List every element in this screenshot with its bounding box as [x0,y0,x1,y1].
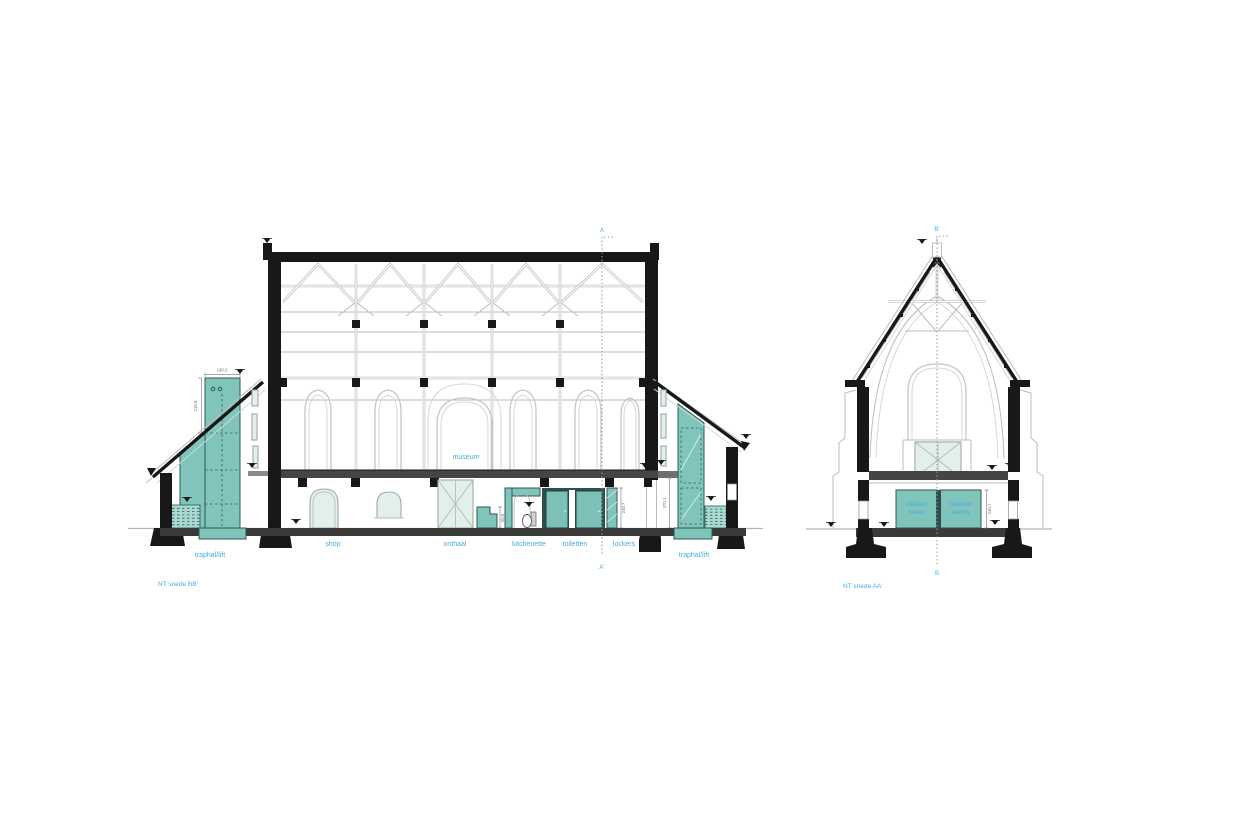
stairs-right [705,506,729,528]
roof-trusses [281,264,645,470]
room-label-traphal-left: traphal/lift [195,552,225,559]
nave-wall-right [645,262,658,470]
roof-slab [268,252,658,262]
dim-room-height: 240,7 [987,503,992,514]
reception-counter [477,507,497,528]
floor-slab-aa [856,528,1020,537]
room-label-onthaal: onthaal [444,541,467,548]
toiletten-dames-box [940,490,981,528]
shop-window-2 [377,492,401,518]
lockers-cabinet [607,488,617,528]
room-label-museum: museum [453,454,480,461]
cut-wall-right [1008,387,1020,472]
cut-label-b-top: B' [934,227,939,233]
room-label-traphal-right: traphal/lift [679,552,709,559]
caption-section-aa: NT snede AA' [843,583,882,590]
cut-label-b-bottom: B [935,571,939,577]
dim-shaft: 370,1 [662,497,667,508]
shop-window-1 [310,489,338,528]
dim-doors: 240,7 [621,502,626,513]
parapet-left [263,243,272,260]
toilet-bowl [523,515,532,528]
lift-shaft [205,378,240,528]
drawing-sheet: museum 190,0 [0,0,1256,838]
room-label-shop: shop [325,541,340,548]
section-aa: toiletten heren toiletten dames 240,7 B'… [806,227,1052,590]
cut-label-a-bottom: A' [599,565,604,571]
room-label-kitchenette: kitchenette [512,541,546,548]
toilet-doors [542,488,605,528]
label-heren-2: heren [909,510,924,516]
blueprint-canvas: museum 190,0 [0,0,1256,838]
outer-wall-left [160,473,172,528]
room-label-lockers: lockers [613,541,636,548]
label-dames-1: toiletten [950,502,971,508]
mezzanine-aa [869,471,1008,480]
floor-slab [160,528,746,536]
parapet-right [650,243,659,260]
left-aisle: 190,0 210,0 [146,368,265,547]
label-heren-1: toiletten [906,502,927,508]
ground-floor: 90,0 240,7 [310,480,626,528]
toiletten-heren-box [896,490,937,528]
cut-label-a-top: A [600,228,604,234]
right-aisle: 370,1 [653,379,750,549]
dim-counter: 90,0 [500,513,505,522]
kitchenette-cabinet [505,488,512,528]
dim-lift-height: 210,0 [193,400,198,411]
room-label-toiletten: toiletten [563,541,588,548]
section-bb: museum 190,0 [128,228,763,588]
nave-wall-left [268,262,281,528]
dim-lift-width: 190,0 [217,368,228,373]
label-dames-2: dames [951,510,969,516]
caption-section-bb: NT snede BB' [158,581,198,588]
toilet-rooms: toiletten heren toiletten dames 240,7 [896,490,992,528]
cut-wall-left [857,387,869,472]
